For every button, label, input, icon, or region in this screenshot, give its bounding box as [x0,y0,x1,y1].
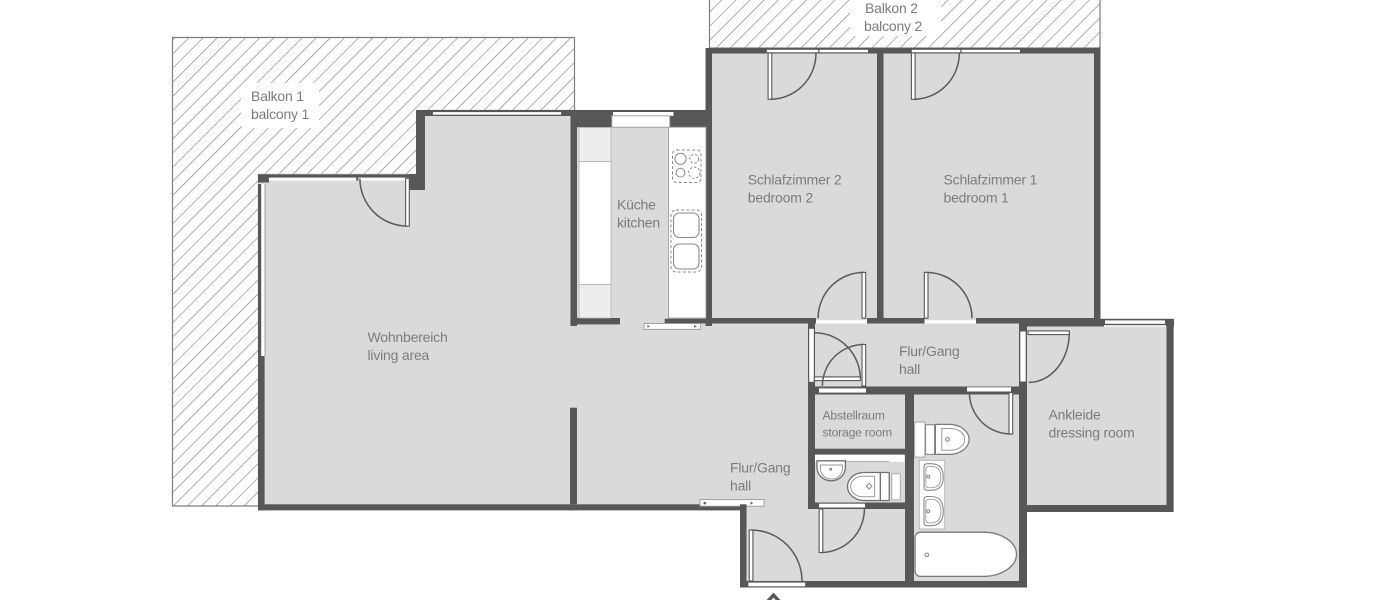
svg-text:dressing room: dressing room [1049,424,1135,440]
svg-text:kitchen: kitchen [617,214,660,230]
svg-text:hall: hall [899,361,920,377]
svg-text:Küche: Küche [617,197,656,213]
svg-text:storage room: storage room [823,426,892,440]
svg-text:living area: living area [368,347,430,363]
svg-text:bedroom 1: bedroom 1 [944,189,1010,205]
svg-text:Schlafzimmer 2: Schlafzimmer 2 [748,172,842,188]
svg-text:Ankleide: Ankleide [1049,407,1102,423]
svg-text:Abstellraum: Abstellraum [823,409,885,423]
svg-text:Balkon 1: Balkon 1 [251,88,304,104]
svg-text:Flur/Gang: Flur/Gang [899,343,959,359]
svg-text:hall: hall [730,477,751,493]
svg-text:Schlafzimmer 1: Schlafzimmer 1 [944,172,1038,188]
svg-text:bedroom 2: bedroom 2 [748,189,814,205]
svg-text:Balkon 2: Balkon 2 [865,0,918,16]
svg-text:balcony 1: balcony 1 [251,106,310,122]
svg-text:balcony 2: balcony 2 [864,18,923,34]
svg-text:Wohnbereich: Wohnbereich [368,329,448,345]
svg-text:Flur/Gang: Flur/Gang [730,460,790,476]
